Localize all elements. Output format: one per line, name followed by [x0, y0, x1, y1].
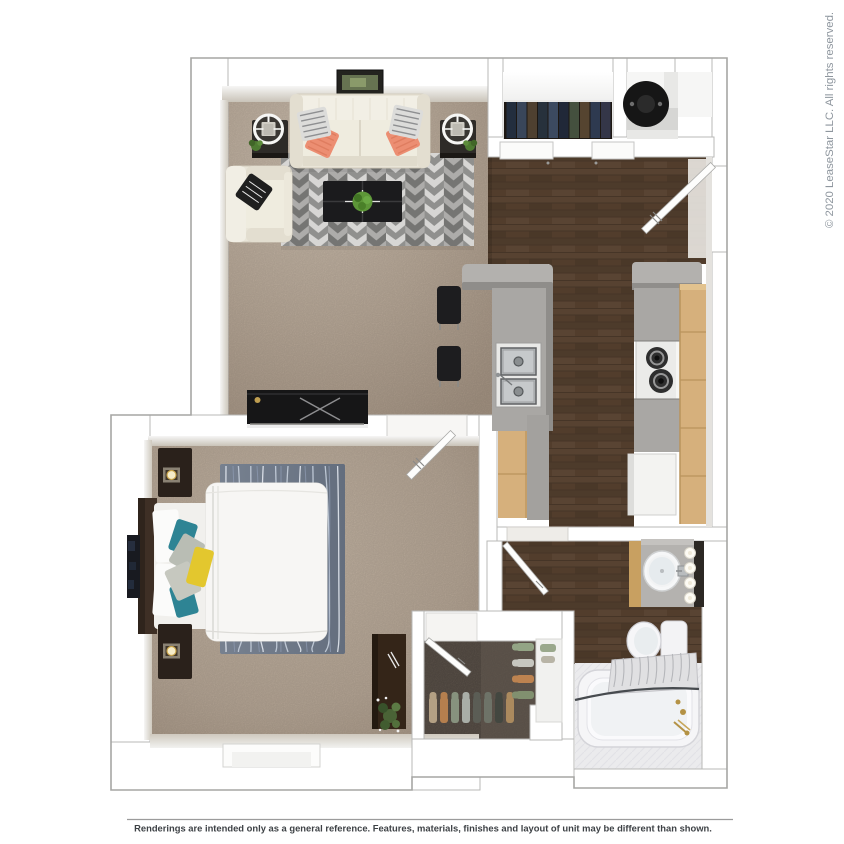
svg-text:Renderings are intended only a: Renderings are intended only as a genera… — [134, 823, 712, 834]
svg-text:© 2020 LeaseStar LLC. All righ: © 2020 LeaseStar LLC. All rights reserve… — [824, 12, 836, 228]
